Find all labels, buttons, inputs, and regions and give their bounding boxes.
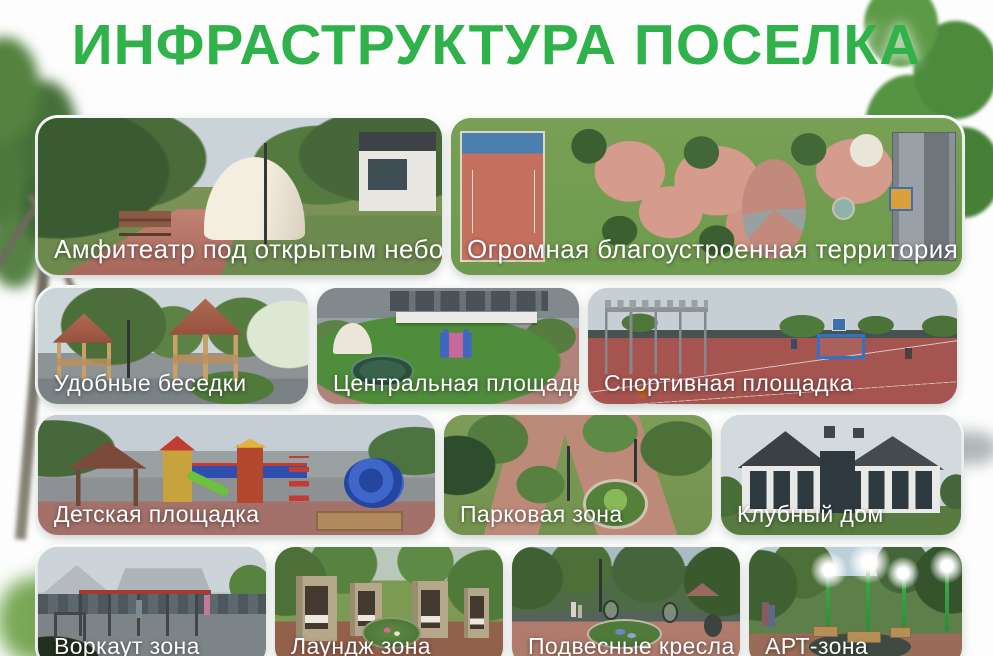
dome-tent: [333, 323, 372, 354]
card-label: Лаундж зона: [291, 633, 431, 656]
pergola: [605, 307, 708, 374]
play-tower: [237, 445, 263, 503]
card-label: АРТ-зона: [765, 633, 868, 656]
canopy: [396, 312, 537, 322]
bench: [890, 627, 911, 638]
climbing-frame: [289, 456, 309, 500]
person-figure: [204, 595, 210, 615]
pond: [832, 197, 856, 221]
person-figure: [762, 602, 769, 626]
card-label: Детская площадка: [54, 501, 259, 528]
lounge-cabana: [464, 588, 489, 638]
gazebo-roof: [168, 298, 243, 334]
dandelion-lamp: [930, 549, 962, 583]
card-label: Амфитеатр под открытым небом: [54, 234, 442, 265]
umbrella: [685, 583, 719, 596]
play-structure: [889, 187, 913, 211]
card-gazebos: Удобные беседки: [38, 288, 308, 404]
gazebo: [173, 298, 238, 380]
card-playground: Детская площадка: [38, 415, 435, 535]
card-central-square: Центральная площадь: [317, 288, 579, 404]
dandelion-lamp: [887, 557, 919, 589]
card-lounge-zone: Лаундж зона: [275, 547, 503, 656]
card-label: Удобные беседки: [54, 370, 246, 397]
football-goal: [817, 334, 865, 358]
card-label: Парковая зона: [460, 501, 623, 528]
person-figure: [571, 602, 576, 617]
person-figure: [578, 605, 582, 618]
dome-tent: [850, 134, 884, 167]
gazebo-roof: [53, 314, 116, 343]
bouncy-castle: [440, 329, 471, 358]
card-label: Подвесные кресла: [528, 633, 735, 656]
card-row-3: Детская площадка Парковая зона Клубный д…: [38, 415, 961, 535]
dandelion-lamp: [811, 552, 847, 588]
player-figure: [905, 348, 912, 359]
sandbox: [316, 511, 403, 531]
card-label: Воркаут зона: [54, 633, 200, 656]
card-hanging-chairs: Подвесные кресла: [512, 547, 740, 656]
card-amphitheater: Амфитеатр под открытым небом: [38, 118, 442, 275]
page-title: ИНФРАСТРУКТУРА ПОСЕЛКА: [0, 12, 993, 78]
card-row-4: Воркаут зона Лаундж зона Подвесные кресл…: [38, 547, 962, 656]
spiral-slide: [344, 458, 404, 508]
card-park-zone: Парковая зона: [444, 415, 712, 535]
hanging-chair: [603, 600, 619, 620]
dandelion-lamp: [849, 547, 889, 583]
card-row-1: Амфитеатр под открытым небом Огромная бл…: [38, 118, 962, 275]
card-label: Спортивная площадка: [604, 370, 853, 397]
house: [359, 132, 436, 211]
lamp-post: [567, 446, 570, 501]
card-sports-ground: Спортивная площадка: [588, 288, 957, 404]
card-label: Клубный дом: [737, 501, 884, 528]
tree-branch: [0, 207, 36, 312]
card-territory: Огромная благоустроенная территория: [451, 118, 962, 275]
lounge-cabana: [296, 576, 337, 641]
person-figure: [136, 600, 142, 618]
card-workout-zone: Воркаут зона: [38, 547, 266, 656]
lamp-post: [264, 143, 267, 243]
chimney: [824, 426, 834, 438]
play-structure: [157, 441, 340, 508]
chimney: [853, 428, 863, 438]
hanging-chair: [662, 602, 678, 622]
building-windows: [390, 291, 547, 311]
house-roof: [116, 563, 212, 594]
card-row-2: Удобные беседки Центральная площадь Спор…: [38, 288, 957, 404]
dome-tent: [204, 157, 305, 240]
lamp-post: [634, 439, 637, 482]
gable-roof: [841, 436, 944, 470]
basketball-backboard: [832, 318, 847, 331]
lamp-post: [599, 559, 602, 612]
workout-rig: [79, 590, 211, 636]
card-label: Огромная благоустроенная территория: [467, 234, 958, 265]
gazebo: [74, 441, 141, 506]
bench: [119, 211, 172, 236]
player-figure: [791, 339, 797, 349]
card-label: Центральная площадь: [333, 370, 579, 397]
card-art-zone: АРТ-зона: [749, 547, 962, 656]
person-figure: [769, 605, 775, 627]
card-club-house: Клубный дом: [721, 415, 961, 535]
